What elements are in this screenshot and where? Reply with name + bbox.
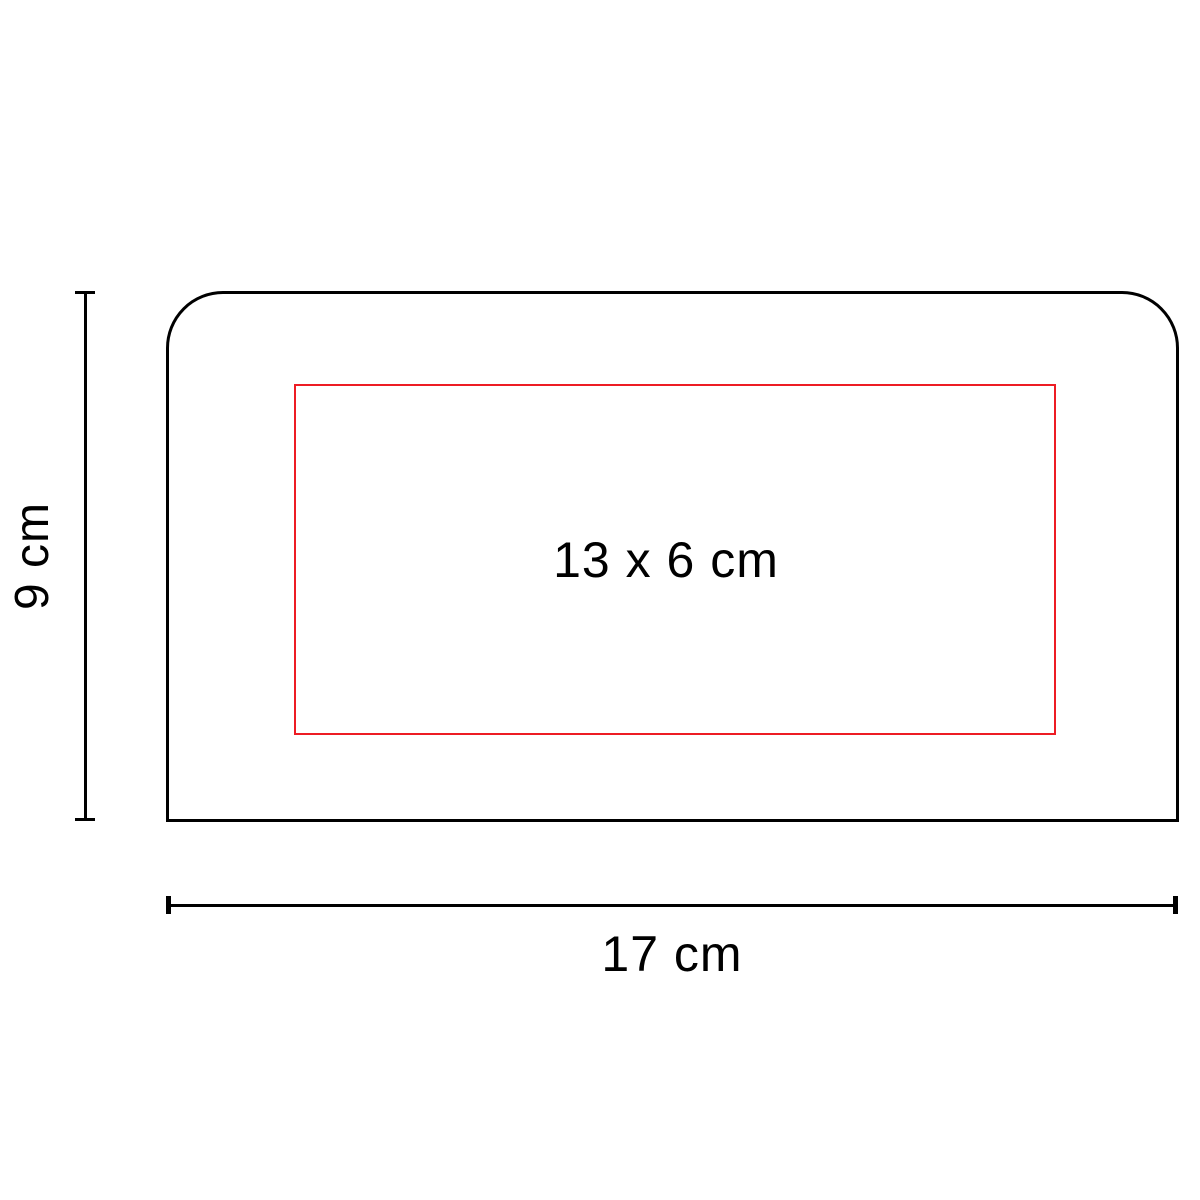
print-area-label: 13 x 6 cm bbox=[553, 535, 779, 585]
height-dimension-label: 9 cm bbox=[9, 502, 57, 610]
height-dimension-line bbox=[84, 292, 87, 820]
dimension-diagram: 13 x 6 cm 9 cm 17 cm bbox=[0, 0, 1200, 1200]
width-dimension-line bbox=[168, 904, 1176, 907]
width-dimension-right-tick bbox=[1173, 896, 1178, 914]
width-dimension-label: 17 cm bbox=[601, 929, 742, 979]
height-dimension-bottom-tick bbox=[75, 818, 95, 821]
print-area: 13 x 6 cm bbox=[294, 384, 1056, 735]
